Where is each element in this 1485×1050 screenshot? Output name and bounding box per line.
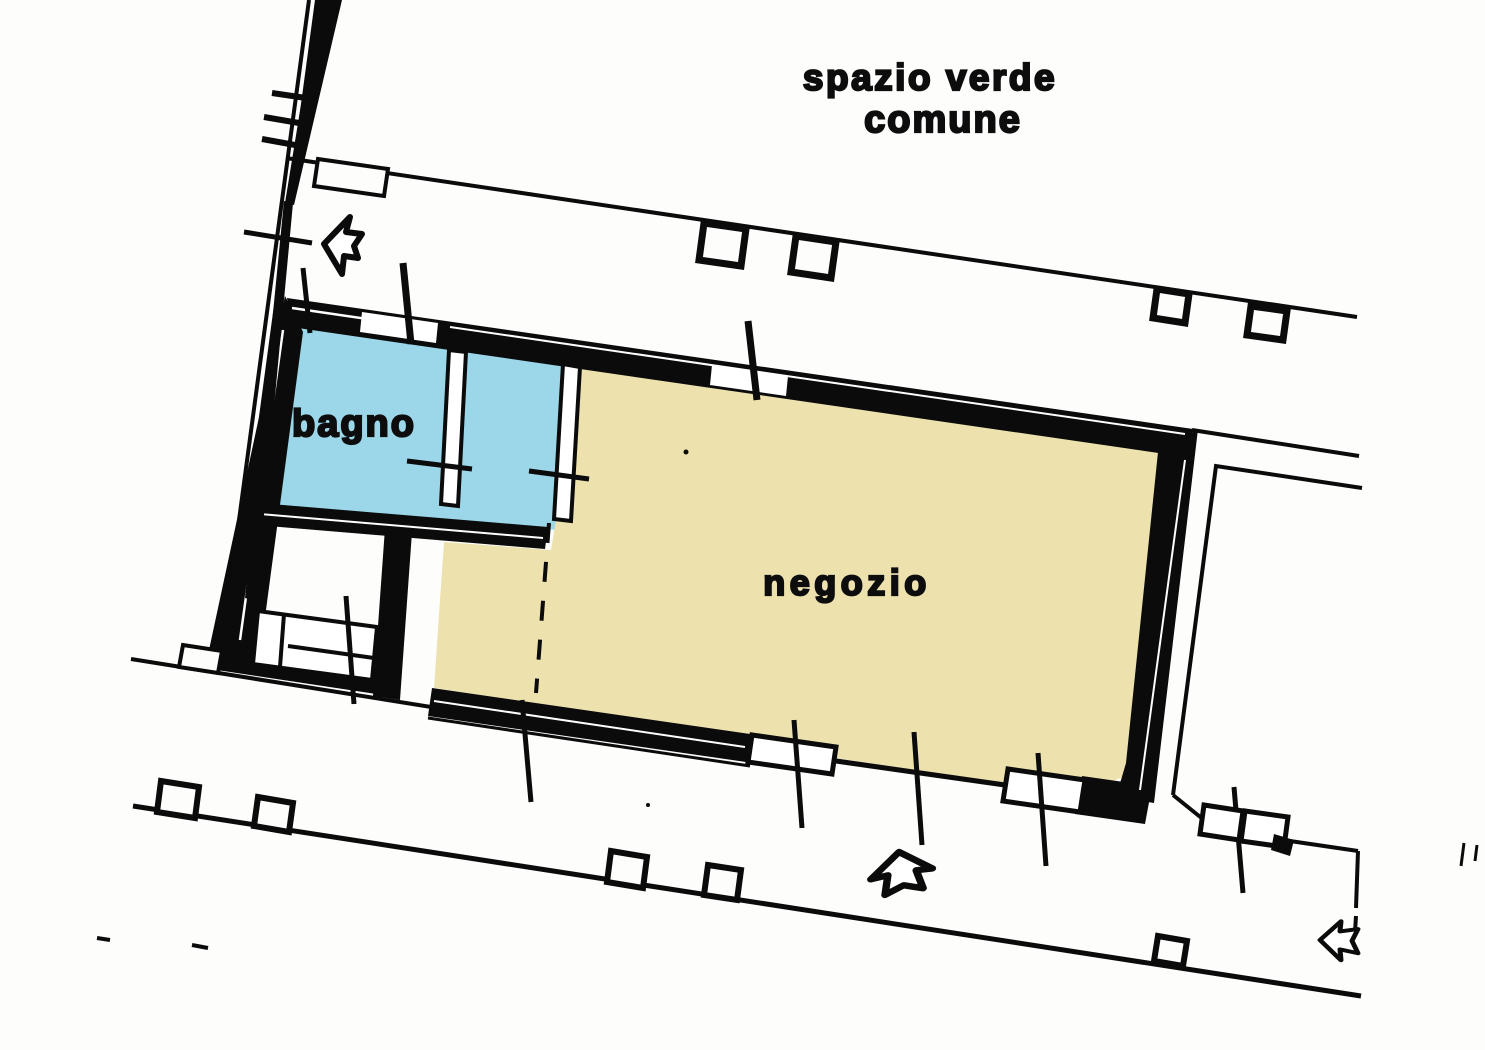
svg-text:spazio verde: spazio verde — [803, 57, 1057, 98]
svg-text:bagno: bagno — [292, 403, 416, 445]
svg-text:negozio: negozio — [763, 562, 930, 603]
svg-text:comune: comune — [864, 99, 1022, 141]
